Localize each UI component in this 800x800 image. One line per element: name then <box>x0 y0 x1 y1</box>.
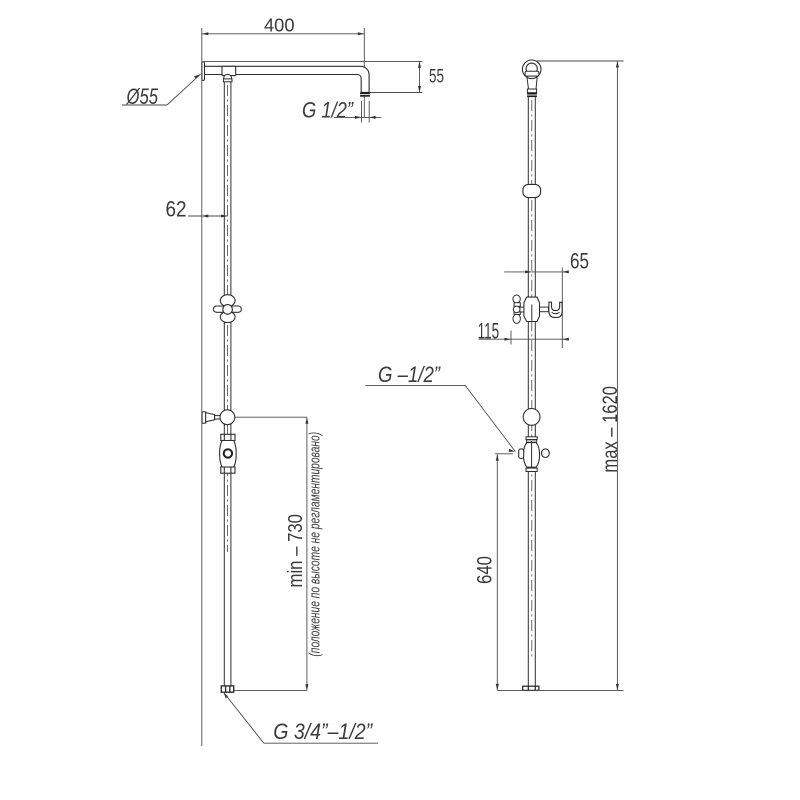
svg-text:400: 400 <box>264 16 295 36</box>
svg-text:62: 62 <box>166 197 187 222</box>
svg-text:min – 730: min – 730 <box>285 514 307 588</box>
svg-text:max – 1620: max – 1620 <box>598 386 622 473</box>
svg-text:65: 65 <box>570 249 589 274</box>
svg-text:55: 55 <box>429 66 444 88</box>
svg-text:(положение по высоте не реглам: (положение по высоте не регламентировано… <box>307 432 324 657</box>
svg-text:640: 640 <box>472 556 496 584</box>
svg-text:G –1/2”: G –1/2” <box>378 362 441 387</box>
svg-text:115: 115 <box>478 319 500 344</box>
svg-text:G 3/4”–1/2”: G 3/4”–1/2” <box>273 719 373 744</box>
svg-text:G 1/2”: G 1/2” <box>302 98 354 123</box>
